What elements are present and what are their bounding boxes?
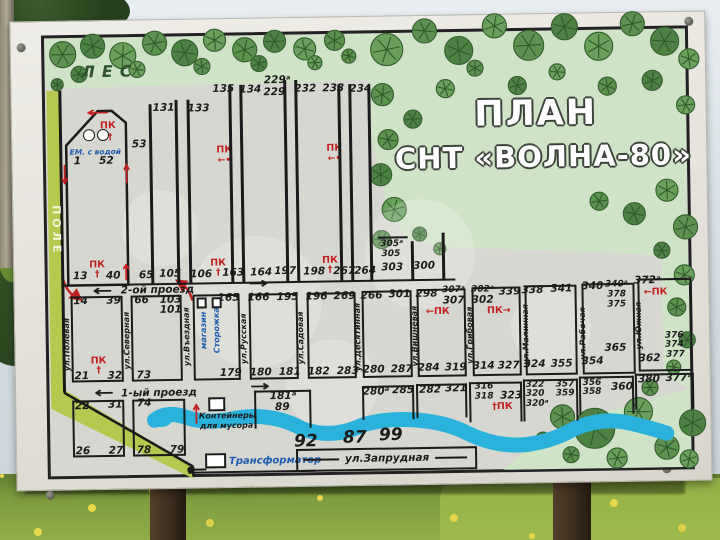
plot-block-outline (579, 376, 635, 415)
plot-number: 198 (303, 266, 325, 277)
plot-number: 131 (153, 103, 175, 114)
road-label: 1-ый проезд (121, 387, 197, 399)
plot-boundary-line (337, 84, 343, 281)
plot-number: 233 (322, 83, 344, 94)
plot-block-outline (524, 285, 577, 376)
plot-boundary-line (188, 469, 315, 473)
plot-boundary-line (228, 85, 234, 283)
plot-boundary-line (435, 456, 467, 459)
direction-arrow: → (248, 276, 268, 291)
plot-block-outline (71, 296, 124, 383)
plot-number: 135 (212, 84, 234, 95)
plot-block-outline (416, 288, 466, 377)
plot-number: 134 (239, 84, 261, 95)
water-tank-icon (83, 129, 95, 141)
direction-arrow: ↑ (121, 162, 133, 189)
plot-block-outline (72, 400, 125, 458)
fire-hydrant-marker: ПК (322, 256, 338, 266)
forest-label: ЛЕС (81, 63, 138, 80)
structure-box (212, 297, 222, 308)
garbage-container-label: для мусора (200, 422, 253, 431)
plot-boundary-line (367, 86, 373, 281)
plot-block-outline (254, 390, 312, 429)
photo-scene: 53131133135134229ᵃ229232233234ПК←•ПК←•ПК… (0, 0, 720, 540)
fire-hydrant-marker: ПК (89, 260, 105, 270)
plot-number: 13 (73, 271, 88, 282)
structure-box (208, 397, 225, 411)
plot-number: 53 (132, 139, 147, 150)
plot-number: 305ᵃ (380, 240, 403, 249)
plot-block-outline (307, 292, 357, 379)
direction-arrow: ← (94, 385, 114, 400)
plot-block-outline (131, 295, 183, 382)
plot-boundary-line (410, 241, 414, 280)
plot-number: 229ᵃ (264, 75, 291, 86)
plot-number: 300 (413, 261, 435, 272)
plot-boundary-line (186, 100, 192, 284)
tilted-board-group: 53131133135134229ᵃ229232233234ПК←•ПК←•ПК… (0, 0, 720, 540)
plot-boundary-line (283, 80, 289, 282)
plot-number: 52 (99, 156, 114, 167)
plot-block-outline (635, 373, 695, 410)
pond-plot-number: 99 (379, 427, 403, 444)
plot-number: 40 (106, 271, 121, 282)
plot-number: 264 (354, 265, 376, 276)
plot-block-outline (361, 290, 412, 378)
plot-boundary-line (378, 236, 408, 239)
map-items: 53131133135134229ᵃ229232233234ПК←•ПК←•ПК… (0, 0, 720, 540)
direction-arrow: ↑ (120, 262, 133, 285)
plot-number: 232 (294, 83, 316, 94)
plot-number: 303 (381, 262, 403, 273)
plot-block-outline (637, 278, 692, 372)
direction-arrow: ↓ (59, 163, 71, 190)
fire-hydrant-marker: † (328, 266, 333, 275)
structure-box (205, 453, 226, 468)
direction-arrow: → (250, 379, 270, 394)
direction-arrow: ↑ (190, 402, 203, 429)
street-name-label: ул.Въездная (183, 307, 192, 366)
plot-block-outline (132, 399, 186, 457)
plot-number: 133 (188, 103, 210, 114)
plot-block-outline (469, 381, 523, 422)
plot-number: 305 (381, 250, 400, 259)
fire-hydrant-marker: † (216, 269, 221, 278)
structure-box (197, 297, 207, 308)
plot-block-outline (416, 383, 468, 418)
garbage-container-label: Контейнеры (199, 412, 256, 421)
pond-plot-number: 87 (343, 429, 367, 446)
direction-arrow: ← (92, 283, 112, 298)
plot-boundary-line (294, 80, 300, 282)
plot-block-outline (581, 283, 635, 375)
field-label: ПОЛЕ (51, 205, 63, 256)
plot-block-outline (471, 286, 521, 376)
plot-block-outline (523, 379, 579, 422)
plot-number: 106 (190, 269, 212, 280)
map-title-line1: ПЛАН (474, 96, 597, 133)
plot-block-outline (362, 385, 415, 420)
plot-boundary-line (174, 100, 180, 284)
direction-arrow: ← (86, 106, 110, 120)
plot-block-outline (249, 293, 299, 380)
plot-boundary-line (441, 233, 445, 280)
plot-number: 1 (74, 156, 81, 167)
plot-boundary-line (148, 104, 154, 284)
plot-boundary-line (348, 84, 354, 281)
plot-boundary-line (239, 85, 245, 283)
exit-marker-dot (187, 467, 193, 473)
map-title-line2: СНТ «ВОЛНА-80» (395, 140, 692, 174)
street-name-label: ул.Русская (240, 313, 249, 364)
fire-hydrant-marker: † (95, 271, 100, 280)
